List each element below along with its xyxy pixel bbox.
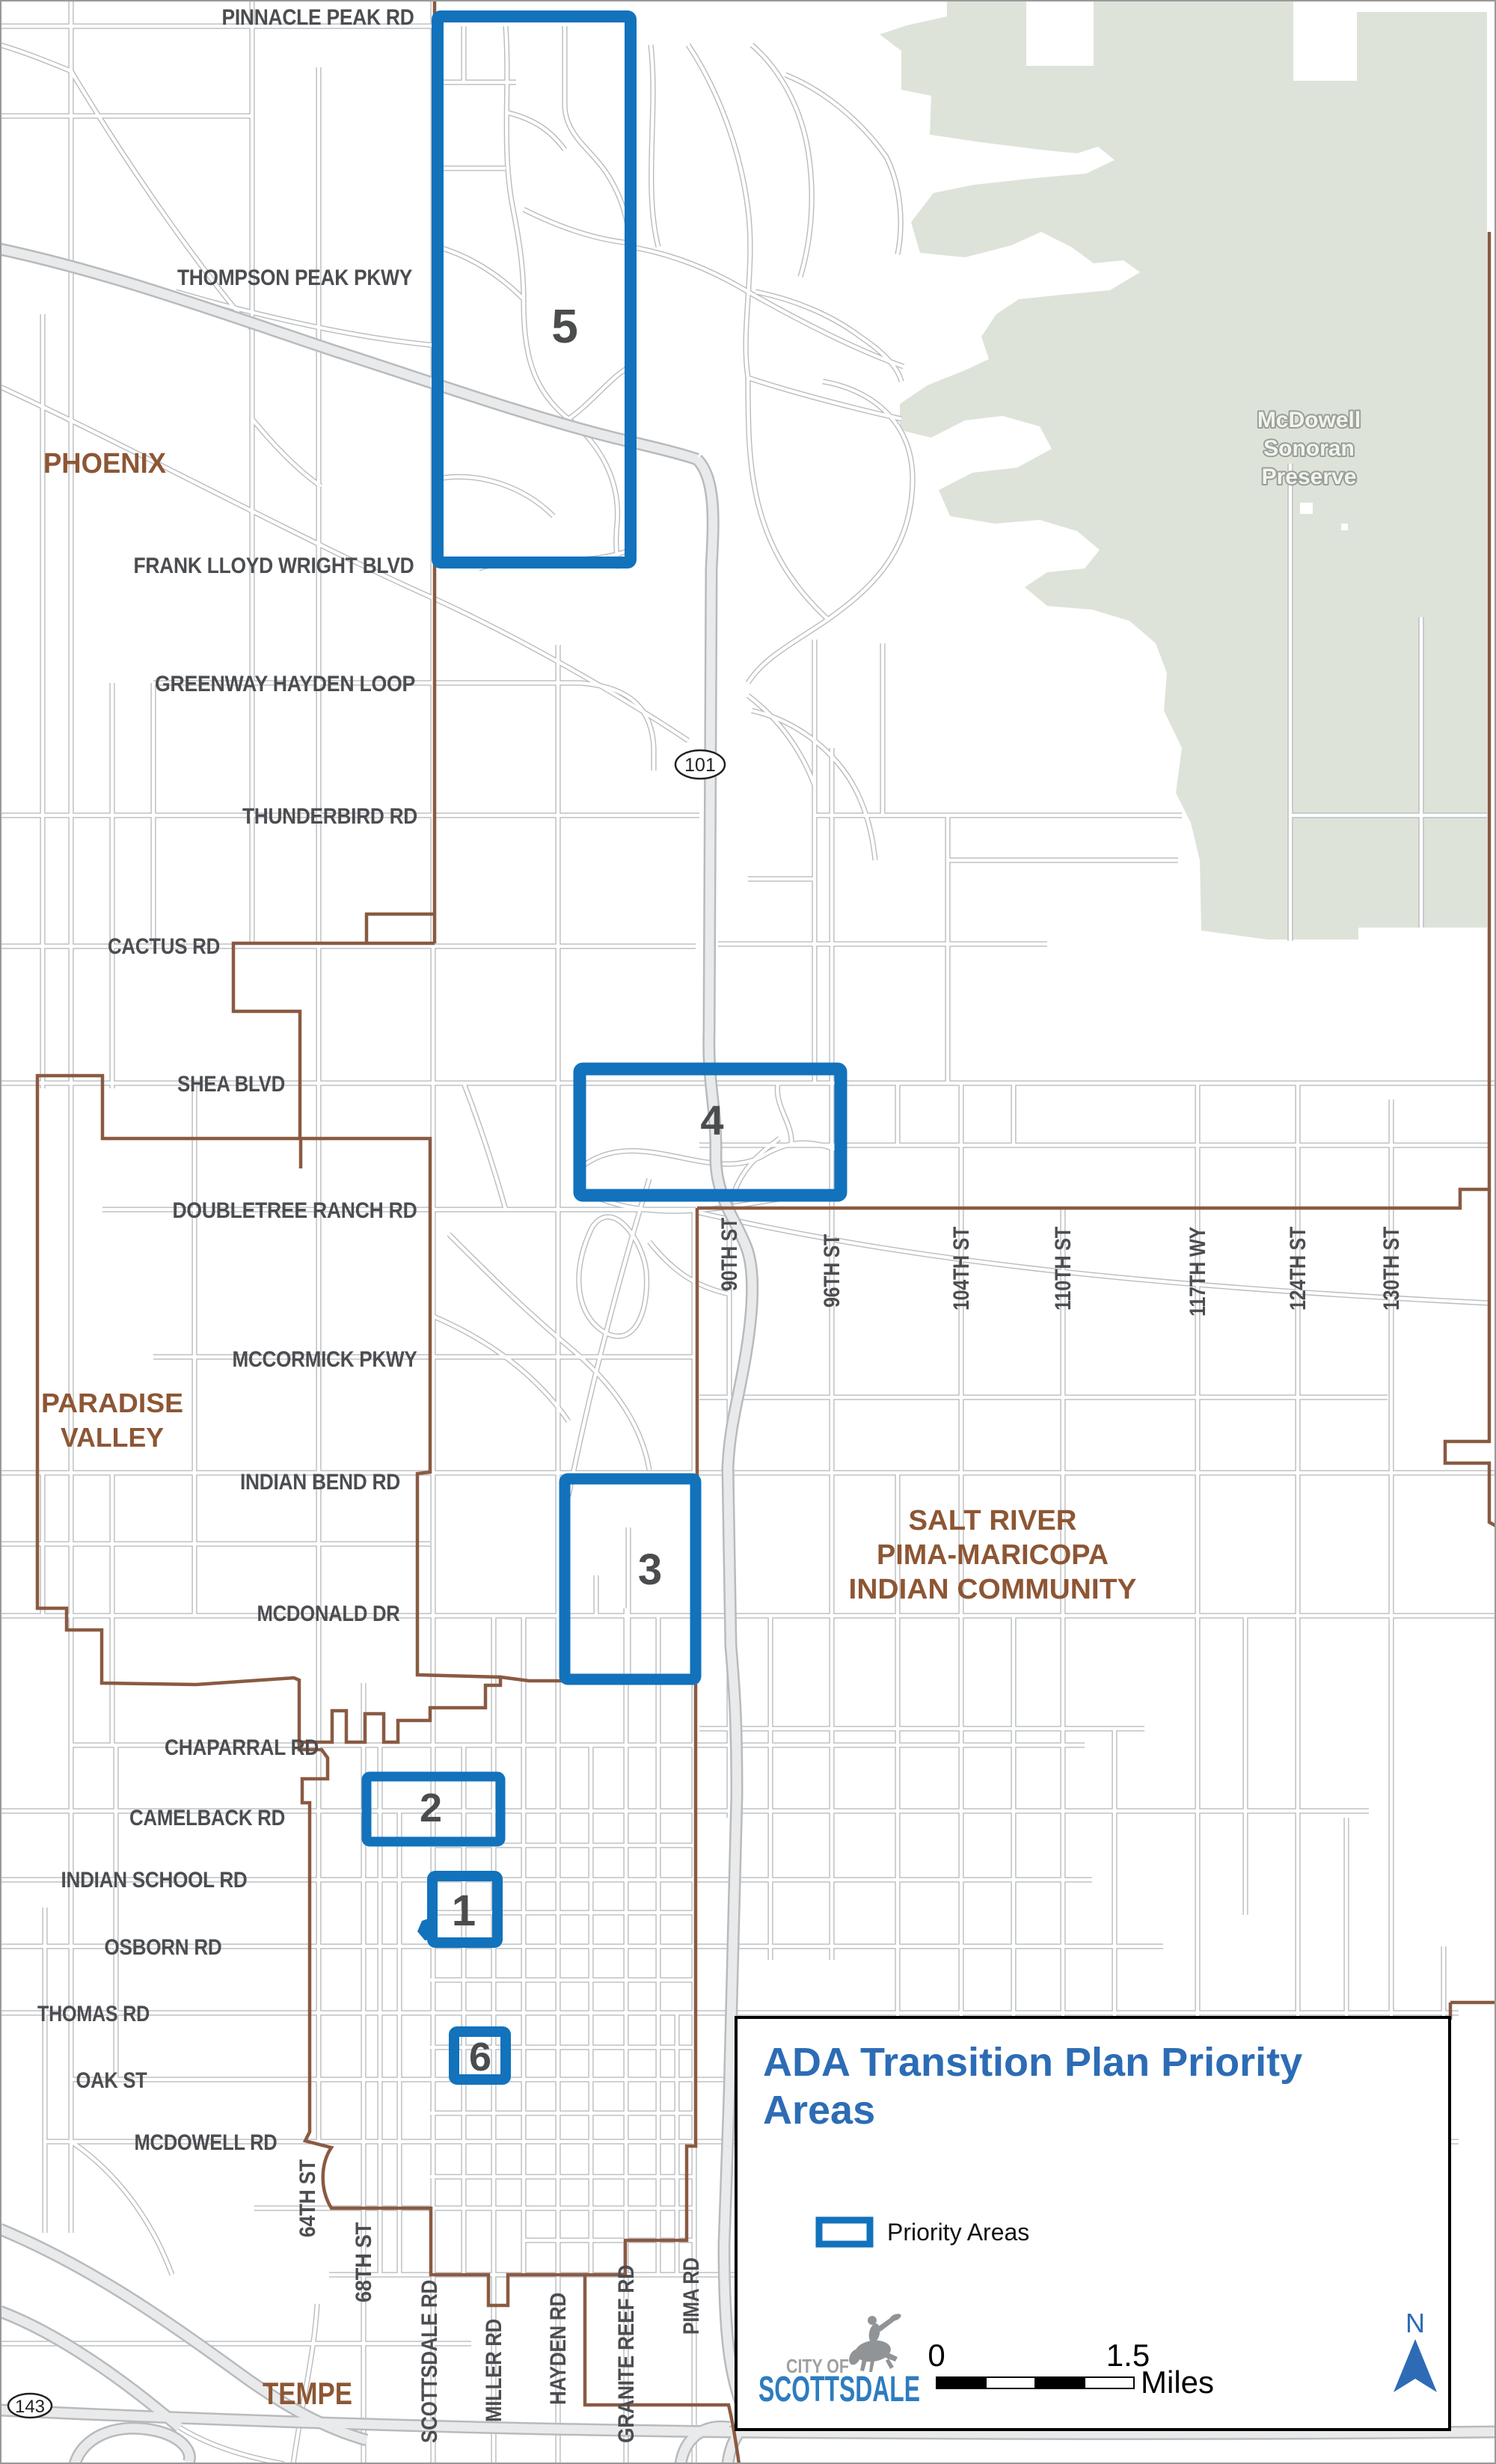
svg-text:SCOTTSDALE: SCOTTSDALE — [758, 2370, 920, 2409]
svg-text:96TH ST: 96TH ST — [820, 1234, 844, 1308]
svg-text:PINNACLE PEAK RD: PINNACLE PEAK RD — [222, 5, 414, 30]
svg-text:INDIAN SCHOOL RD: INDIAN SCHOOL RD — [61, 1868, 248, 1893]
svg-text:TEMPE: TEMPE — [263, 2376, 352, 2411]
svg-text:Priority Areas: Priority Areas — [887, 2219, 1029, 2246]
svg-text:McDowell: McDowell — [1257, 408, 1361, 432]
svg-text:68TH ST: 68TH ST — [352, 2222, 376, 2302]
svg-text:CACTUS RD: CACTUS RD — [108, 934, 220, 959]
svg-text:SCOTTSDALE RD: SCOTTSDALE RD — [417, 2280, 442, 2443]
svg-text:SALT RIVER: SALT RIVER — [909, 1505, 1077, 1536]
svg-text:143: 143 — [15, 2397, 45, 2417]
svg-text:1: 1 — [452, 1887, 476, 1935]
svg-text:MCDONALD DR: MCDONALD DR — [257, 1602, 401, 1626]
svg-text:CHAPARRAL RD: CHAPARRAL RD — [165, 1735, 319, 1760]
svg-text:VALLEY: VALLEY — [61, 1422, 164, 1453]
svg-text:3: 3 — [638, 1545, 662, 1594]
svg-text:N: N — [1405, 2308, 1425, 2338]
svg-text:PIMA RD: PIMA RD — [679, 2258, 704, 2335]
svg-text:4: 4 — [700, 1097, 723, 1144]
svg-text:THOMPSON PEAK PKWY: THOMPSON PEAK PKWY — [177, 266, 412, 290]
svg-text:130TH ST: 130TH ST — [1379, 1227, 1404, 1311]
svg-text:DOUBLETREE RANCH RD: DOUBLETREE RANCH RD — [173, 1198, 417, 1223]
svg-text:PIMA-MARICOPA: PIMA-MARICOPA — [877, 1539, 1109, 1571]
svg-text:124TH ST: 124TH ST — [1286, 1227, 1310, 1311]
svg-text:PHOENIX: PHOENIX — [43, 448, 167, 479]
svg-text:INDIAN COMMUNITY: INDIAN COMMUNITY — [849, 1574, 1137, 1605]
svg-text:INDIAN BEND RD: INDIAN BEND RD — [240, 1470, 400, 1495]
svg-text:SHEA BLVD: SHEA BLVD — [177, 1072, 285, 1097]
svg-text:OAK ST: OAK ST — [76, 2068, 147, 2093]
svg-text:MILLER RD: MILLER RD — [482, 2319, 506, 2422]
svg-text:THOMAS RD: THOMAS RD — [37, 2002, 150, 2026]
svg-text:MCDOWELL RD: MCDOWELL RD — [135, 2130, 278, 2155]
svg-text:GRANITE REEF RD: GRANITE REEF RD — [614, 2265, 639, 2443]
svg-text:HAYDEN RD: HAYDEN RD — [546, 2293, 571, 2405]
svg-text:6: 6 — [469, 2035, 491, 2080]
svg-text:OSBORN RD: OSBORN RD — [105, 1935, 222, 1960]
svg-text:90TH ST: 90TH ST — [717, 1218, 742, 1291]
svg-text:110TH ST: 110TH ST — [1051, 1227, 1076, 1311]
svg-text:THUNDERBIRD RD: THUNDERBIRD RD — [242, 804, 417, 829]
svg-text:GREENWAY HAYDEN LOOP: GREENWAY HAYDEN LOOP — [155, 672, 415, 696]
svg-text:5: 5 — [551, 299, 578, 353]
svg-text:PARADISE: PARADISE — [41, 1388, 183, 1418]
svg-text:117TH WY: 117TH WY — [1186, 1227, 1210, 1317]
svg-text:MCCORMICK PKWY: MCCORMICK PKWY — [233, 1347, 417, 1372]
svg-text:Miles: Miles — [1141, 2365, 1214, 2400]
svg-text:ADA Transition Plan Priority: ADA Transition Plan Priority — [763, 2040, 1302, 2085]
svg-text:2: 2 — [420, 1786, 442, 1830]
svg-text:Sonoran: Sonoran — [1263, 436, 1355, 461]
svg-text:0: 0 — [928, 2338, 945, 2373]
svg-text:64TH ST: 64TH ST — [295, 2160, 320, 2237]
svg-text:Preserve: Preserve — [1262, 465, 1357, 489]
svg-text:101: 101 — [684, 755, 716, 776]
svg-text:104TH ST: 104TH ST — [949, 1227, 974, 1311]
svg-text:CAMELBACK RD: CAMELBACK RD — [129, 1806, 285, 1830]
svg-text:Areas: Areas — [763, 2088, 875, 2133]
svg-text:FRANK LLOYD WRIGHT BLVD: FRANK LLOYD WRIGHT BLVD — [134, 554, 414, 578]
